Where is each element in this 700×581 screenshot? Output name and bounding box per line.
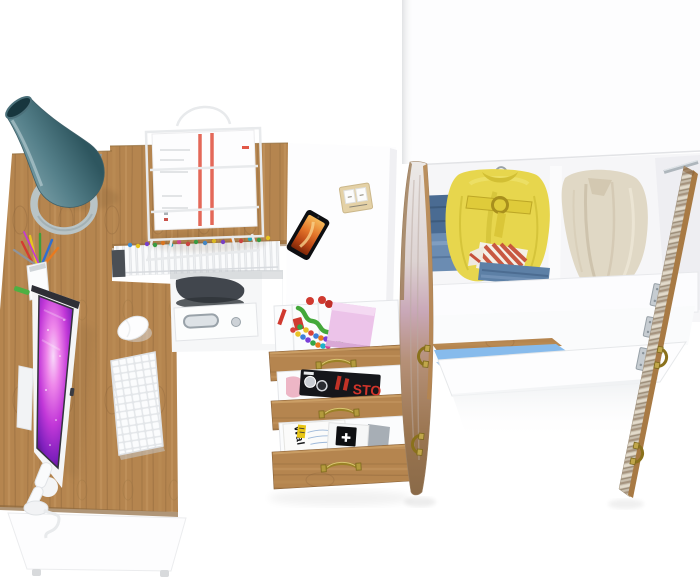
furniture-render: STO Wal ✚ [0, 0, 700, 581]
wardrobe-top-panel [402, 0, 700, 166]
desk-foot [32, 569, 41, 576]
monitor-back-plate [17, 366, 33, 430]
dark-notebook [112, 250, 126, 277]
drawer-unit-shadow [268, 490, 412, 506]
wardrobe-left-door [400, 162, 433, 495]
wardrobe-partition [548, 166, 562, 290]
left-door-shadow [404, 497, 436, 507]
desk-front-panel [8, 513, 186, 571]
desk-recess [170, 270, 283, 352]
monitor-base [24, 501, 48, 515]
sticky-notes [325, 302, 376, 352]
drawer-bottom: Wal ✚ [272, 416, 410, 489]
metal-object [366, 424, 390, 448]
booklet-symbol: ✚ [340, 431, 351, 446]
scene-svg: STO Wal ✚ [0, 0, 700, 581]
yellow-tag [297, 425, 306, 439]
flip-calendar [339, 183, 373, 213]
drawer-front [272, 444, 410, 489]
drawer-handle-chrome [184, 314, 219, 328]
drawer-knob [232, 318, 241, 327]
desk-foot [160, 570, 169, 577]
keyboard [111, 352, 165, 460]
right-door-shadow [608, 499, 644, 509]
cabinet: STO Wal ✚ [268, 143, 412, 506]
top-panel-left-edge [402, 0, 414, 164]
